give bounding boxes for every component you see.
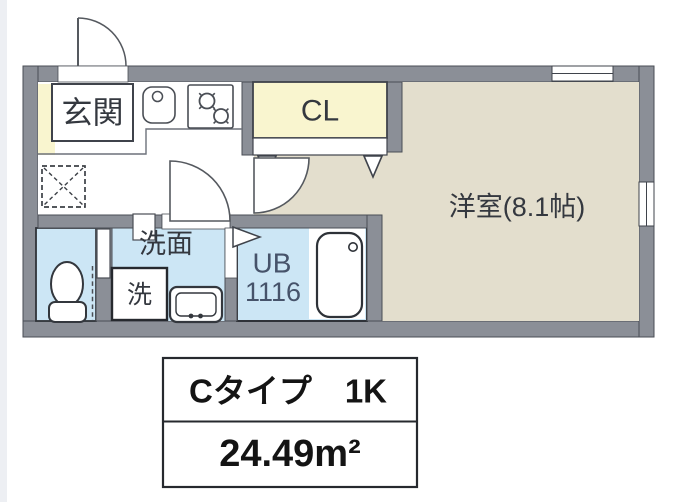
wall-band-right (230, 215, 382, 228)
washbasin-body (170, 287, 222, 322)
washroom-label: 洗面 (139, 229, 193, 259)
floorplan-image: 玄関 CL 洋室(8.1帖) 洗面 洗 UB 1116 Cタイプ 1K 24.4… (0, 0, 700, 502)
sink-faucet (153, 92, 163, 102)
toilet-tank (49, 302, 86, 322)
closet-label: CL (301, 95, 339, 128)
washbasin-icon (170, 287, 222, 322)
toilet-bowl (51, 262, 83, 306)
toilet-door-leaf (97, 229, 110, 278)
type-label: Cタイプ 1K (189, 373, 387, 410)
washbasin-knob-2 (198, 314, 203, 319)
entrance-opening (58, 66, 128, 82)
page-edge-strip (0, 0, 7, 502)
washing-machine-label: 洗 (127, 281, 152, 309)
bathtub-drain (349, 243, 357, 251)
western-room-label: 洋室(8.1帖) (449, 192, 586, 222)
floorplan-svg: 玄関 CL 洋室(8.1帖) 洗面 洗 UB 1116 Cタイプ 1K 24.4… (0, 0, 700, 502)
area-label: 24.49m² (219, 433, 361, 475)
wall-bath-room (367, 215, 382, 321)
closet-track (253, 138, 387, 155)
wall-bottom (23, 321, 654, 337)
unit-bath-label: UB (253, 248, 292, 279)
toilet-icon (49, 262, 86, 322)
unit-bath-size-label: 1116 (245, 277, 301, 307)
kitchen-sink-icon (143, 87, 175, 123)
genkan-label: 玄関 (62, 96, 124, 131)
washbasin-knob-1 (189, 314, 194, 319)
wall-closet-side (387, 82, 402, 152)
bathtub-icon (317, 233, 362, 317)
gas-stove-icon (188, 85, 233, 128)
info-box: Cタイプ 1K 24.49m² (163, 358, 417, 487)
